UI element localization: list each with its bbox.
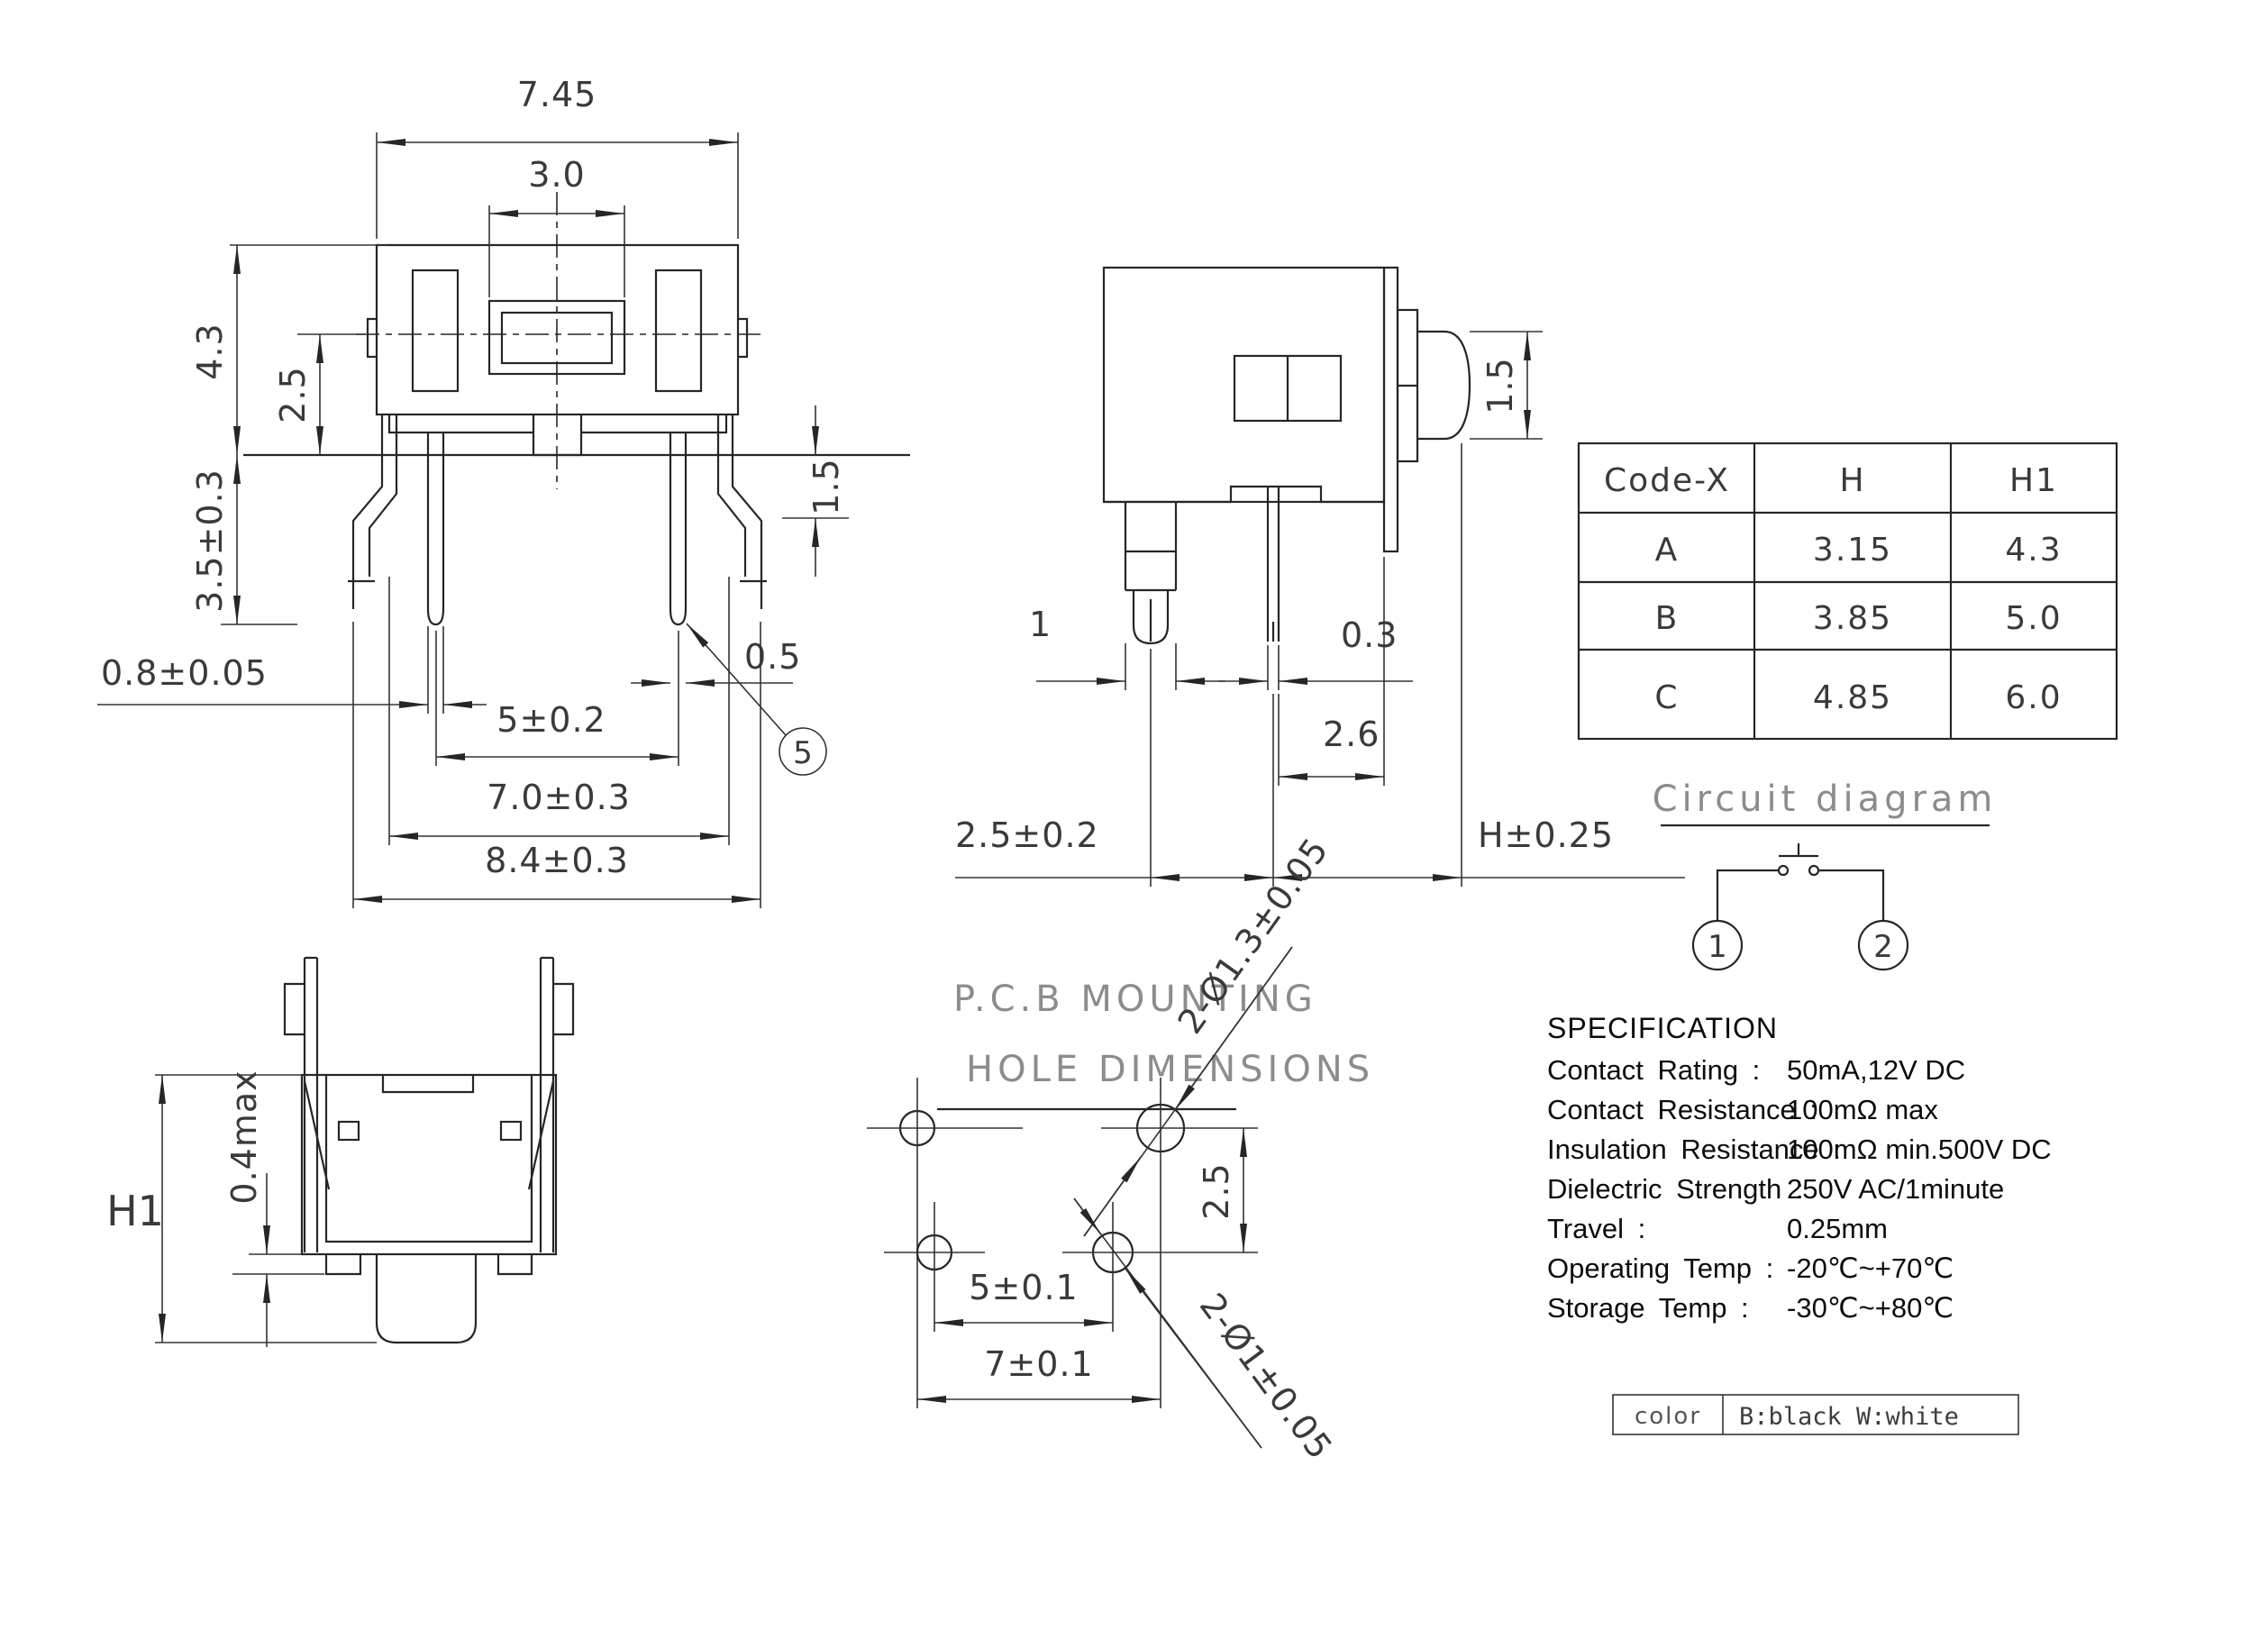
left-side-tab — [368, 319, 377, 357]
dim-outer-span: 8.4±0.3 — [485, 841, 629, 880]
right-pin — [670, 432, 686, 624]
bottom-view: H1 0.4max — [106, 958, 573, 1347]
col-header-code: Code-X — [1604, 462, 1730, 499]
dim-pin-width: 0.8±0.05 — [101, 653, 268, 693]
right-bent-lead — [718, 414, 761, 609]
cell-c-h1: 6.0 — [2005, 679, 2062, 716]
color-label: color — [1635, 1403, 1701, 1430]
side-body — [1104, 268, 1384, 502]
dim-outer-pitch: 7.0±0.3 — [487, 778, 631, 817]
circuit-wires — [1717, 870, 1883, 921]
dim-pin-pitch: 5±0.2 — [496, 700, 606, 740]
right-side-tab — [738, 319, 747, 357]
spec-value-6: -30℃~+80℃ — [1787, 1292, 1954, 1324]
dim-lead-width: 1 — [1029, 605, 1052, 644]
spec-label-0: Contact Rating : — [1547, 1054, 1760, 1086]
right-post — [656, 270, 701, 391]
balloon-number: 5 — [793, 735, 813, 771]
dim-height: 4.3 — [190, 323, 230, 379]
bv-left-hole — [339, 1122, 359, 1140]
dim-plunger-dia: 1.5 — [1480, 357, 1520, 414]
cell-b-h1: 5.0 — [2005, 600, 2062, 637]
spec-value-5: -20℃~+70℃ — [1787, 1252, 1954, 1284]
specification-block: SPECIFICATION Contact Rating : 50mA,12V … — [1547, 1012, 2052, 1324]
left-post — [413, 270, 458, 391]
spec-value-0: 50mA,12V DC — [1787, 1054, 1965, 1086]
dim-overall-width: 7.45 — [517, 75, 597, 114]
bv-inner-contour — [326, 1075, 532, 1242]
code-table: Code-X H H1 A 3.15 4.3 B 3.85 5.0 C 4.85… — [1579, 443, 2117, 739]
bv-right-tab — [553, 984, 573, 1034]
circuit-title: Circuit diagram — [1653, 778, 1998, 820]
dim-pin-offset: 2.6 — [1323, 715, 1380, 754]
bv-stem — [377, 1254, 476, 1343]
circuit-diagram: Circuit diagram 1 2 — [1653, 778, 1998, 970]
spec-label-1: Contact Resistance : — [1547, 1094, 1817, 1125]
cell-a: A — [1655, 532, 1680, 569]
dim-pitch7: 7±0.1 — [984, 1344, 1093, 1384]
spec-label-4: Travel : — [1547, 1213, 1645, 1244]
side-center-pin — [1268, 487, 1279, 642]
drawing-sheet: 7.45 3.0 4.3 2.5 3.5±0.3 1.5 0.8±0.05 0.… — [0, 0, 2268, 1648]
dim-center-height: 2.5 — [273, 366, 313, 423]
bv-right-hole — [501, 1122, 521, 1140]
bv-body — [302, 1075, 556, 1254]
spec-label-6: Storage Temp : — [1547, 1292, 1749, 1324]
terminal-2-label: 2 — [1873, 929, 1893, 965]
color-value: B:black W:white — [1739, 1403, 1959, 1431]
contact-a-icon — [1779, 866, 1788, 875]
spec-label-3: Dielectric Strength : — [1547, 1173, 1804, 1205]
dim-row-gap: 2.5 — [1197, 1162, 1236, 1219]
contact-b-icon — [1809, 866, 1818, 875]
cell-a-h: 3.15 — [1813, 532, 1892, 569]
cell-b: B — [1655, 600, 1680, 637]
technical-drawing-canvas: 7.45 3.0 4.3 2.5 3.5±0.3 1.5 0.8±0.05 0.… — [0, 0, 2268, 1648]
color-table: color B:black W:white — [1613, 1395, 2018, 1434]
side-plate — [1384, 268, 1398, 551]
cell-c-h: 4.85 — [1813, 679, 1892, 716]
cell-a-h1: 4.3 — [2005, 532, 2062, 569]
flange-ledge — [389, 414, 726, 432]
pcb-mounting-view: P.C.B MOUNTING HOLE DIMENSIONS 2-Ø1.3±0.… — [867, 831, 1374, 1468]
dim-standoff: 0.4max — [224, 1070, 264, 1204]
terminal-1-label: 1 — [1708, 929, 1727, 965]
spec-value-1: 100mΩ max — [1787, 1094, 1938, 1125]
side-bottom — [1104, 487, 1384, 502]
bv-right-foot — [498, 1254, 532, 1274]
dim-hole-small: 2-Ø1±0.05 — [1192, 1286, 1341, 1467]
bv-top-notch — [383, 1075, 473, 1092]
cell-c: C — [1654, 679, 1679, 716]
dim-lead-length: 3.5±0.3 — [190, 469, 230, 613]
front-view: 7.45 3.0 4.3 2.5 3.5±0.3 1.5 0.8±0.05 0.… — [97, 75, 910, 908]
dim-button-width: 3.0 — [528, 155, 585, 195]
col-header-h1: H1 — [2009, 462, 2058, 499]
plunger-tip — [1417, 332, 1470, 439]
spec-label-5: Operating Temp : — [1547, 1252, 1773, 1284]
dim-bend-drop: 1.5 — [806, 458, 846, 514]
spec-value-2: 100mΩ min.500V DC — [1787, 1134, 2052, 1165]
spec-value-4: 0.25mm — [1787, 1213, 1888, 1244]
dim-lead-offset: 2.5±0.2 — [955, 815, 1099, 855]
spec-value-3: 250V AC/1minute — [1787, 1173, 2004, 1205]
dim-pitch5: 5±0.1 — [969, 1268, 1078, 1307]
dim-pin-tip: 0.5 — [744, 637, 801, 677]
col-header-h: H — [1839, 462, 1865, 499]
spec-title: SPECIFICATION — [1547, 1012, 1778, 1044]
bv-left-foot — [326, 1254, 360, 1274]
pcb-title-line2: HOLE DIMENSIONS — [966, 1049, 1374, 1090]
dim-pin-thickness: 0.3 — [1341, 615, 1398, 655]
dim-h1: H1 — [106, 1187, 164, 1235]
side-view: 1.5 1 0.3 2.6 2.5±0.2 H±0.25 — [955, 268, 1685, 887]
left-pin — [428, 432, 443, 624]
dim-switch-height: H±0.25 — [1478, 815, 1614, 855]
pcb-title-line1: P.C.B MOUNTING — [953, 979, 1317, 1020]
bv-left-tab — [285, 984, 305, 1034]
cell-b-h: 3.85 — [1813, 600, 1892, 637]
